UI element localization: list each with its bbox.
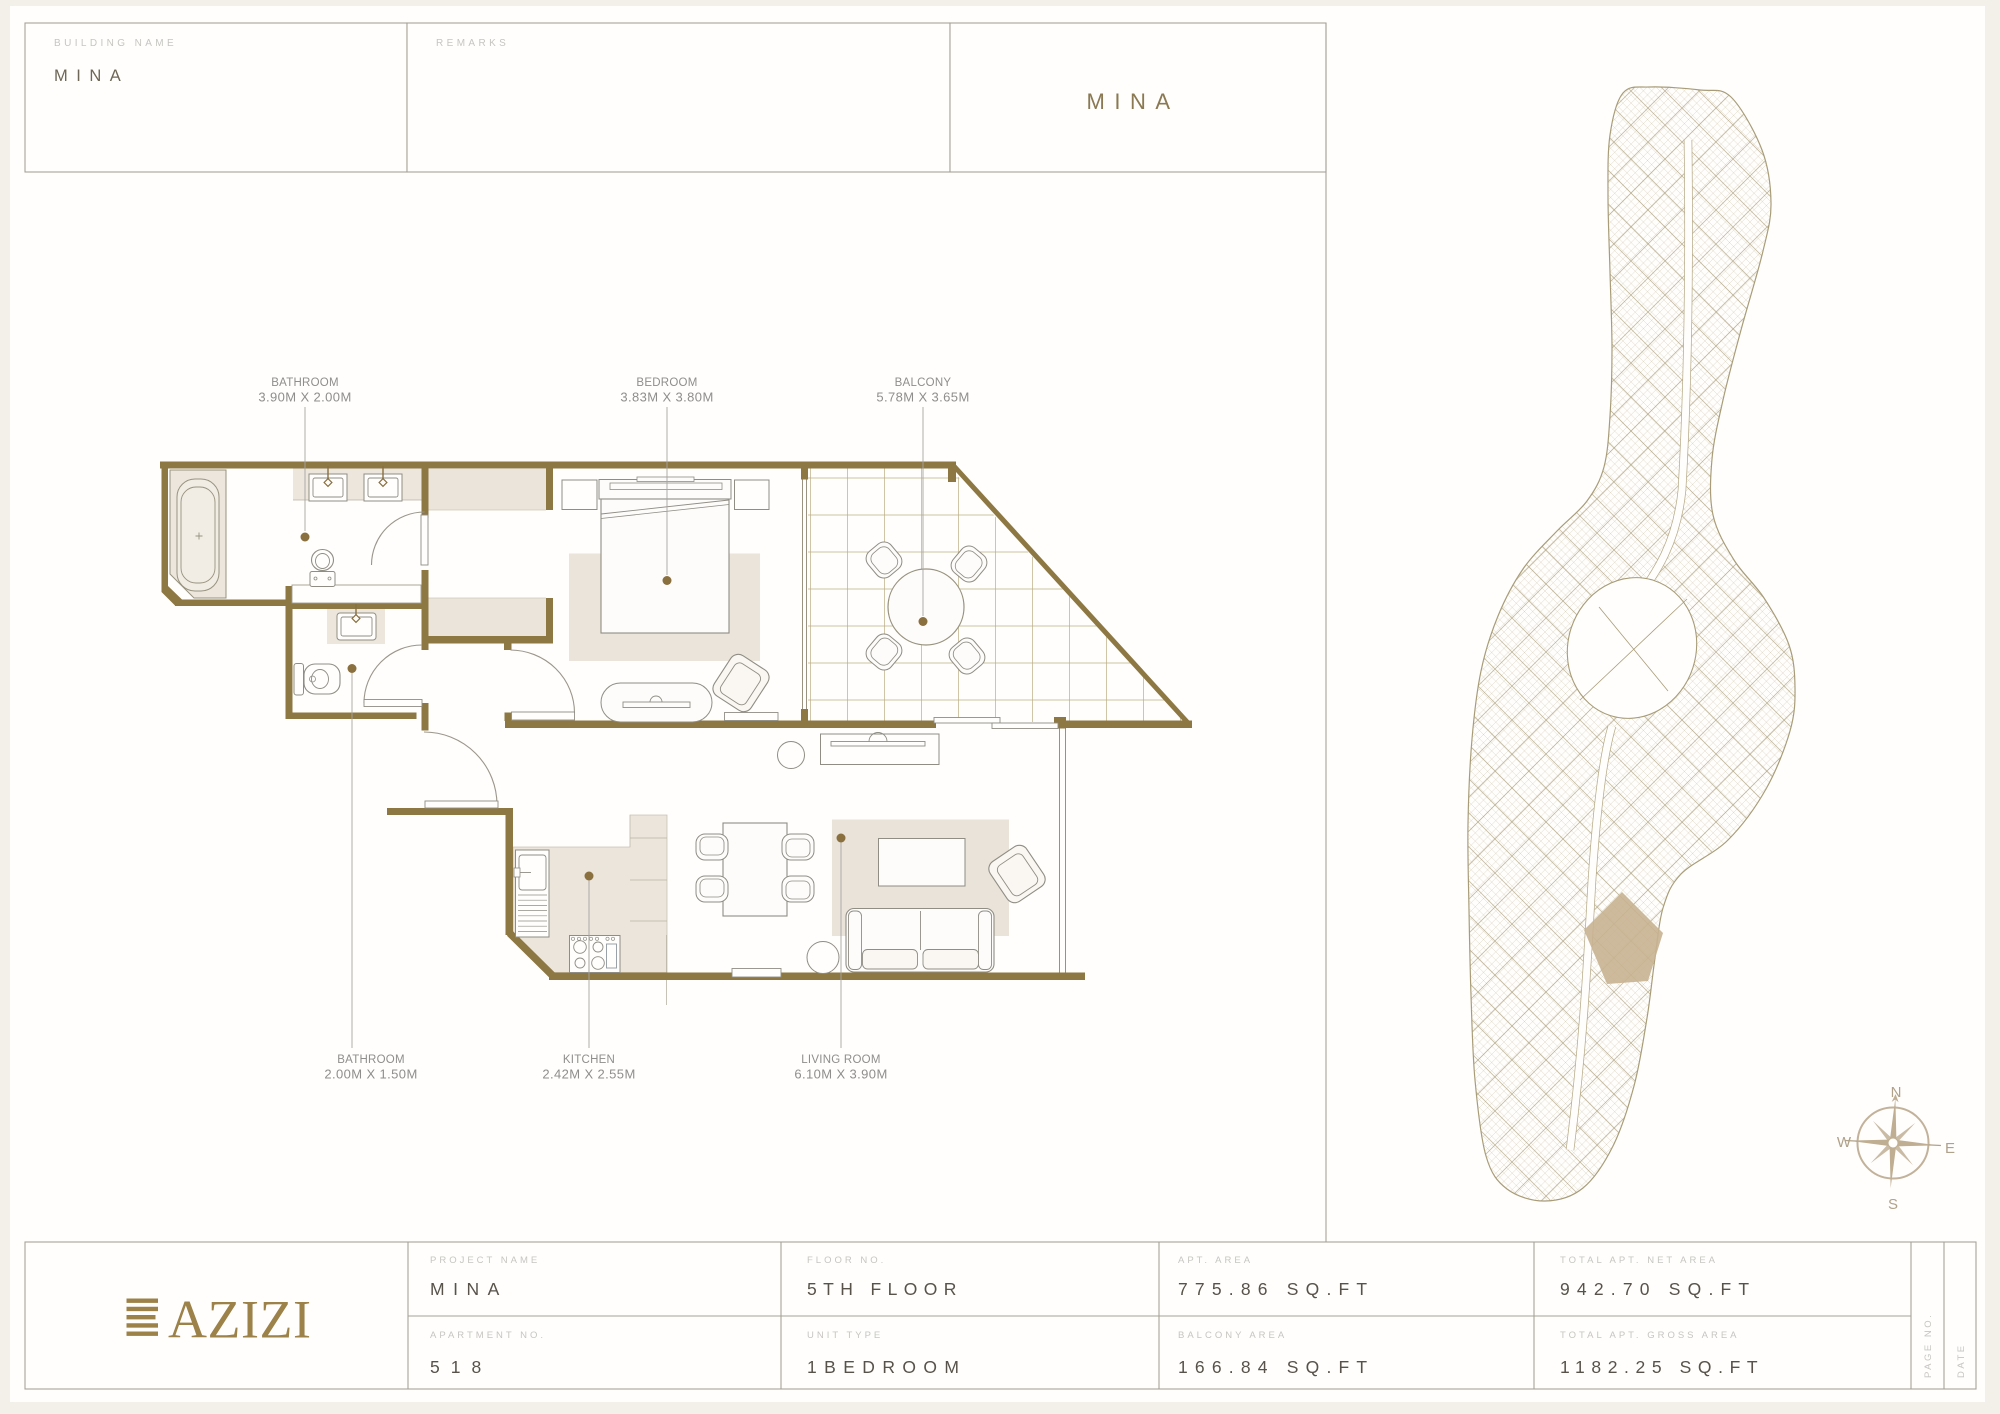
svg-text:FLOOR NO.: FLOOR NO. bbox=[807, 1255, 886, 1266]
svg-text:APARTMENT NO.: APARTMENT NO. bbox=[430, 1330, 546, 1341]
svg-text:3.90M X 2.00M: 3.90M X 2.00M bbox=[258, 390, 351, 405]
svg-text:2.00M X 1.50M: 2.00M X 1.50M bbox=[324, 1067, 417, 1082]
svg-text:BALCONY: BALCONY bbox=[895, 377, 952, 389]
svg-text:2.42M X 2.55M: 2.42M X 2.55M bbox=[542, 1067, 635, 1082]
svg-text:UNIT TYPE: UNIT TYPE bbox=[807, 1330, 883, 1341]
svg-text:S: S bbox=[1888, 1196, 1898, 1213]
svg-text:5TH FLOOR: 5TH FLOOR bbox=[807, 1279, 963, 1299]
svg-text:MINA: MINA bbox=[430, 1279, 508, 1299]
svg-text:TOTAL APT. GROSS AREA: TOTAL APT. GROSS AREA bbox=[1560, 1330, 1740, 1341]
svg-text:APT. AREA: APT. AREA bbox=[1178, 1255, 1253, 1266]
svg-text:LIVING ROOM: LIVING ROOM bbox=[801, 1054, 880, 1066]
svg-text:BATHROOM: BATHROOM bbox=[337, 1054, 405, 1066]
svg-text:REMARKS: REMARKS bbox=[436, 38, 509, 49]
svg-text:MINA: MINA bbox=[1087, 89, 1180, 114]
svg-text:1182.25 SQ.FT: 1182.25 SQ.FT bbox=[1560, 1357, 1764, 1377]
svg-text:5.78M X 3.65M: 5.78M X 3.65M bbox=[876, 390, 969, 405]
svg-text:AZIZI: AZIZI bbox=[168, 1290, 311, 1350]
svg-text:TOTAL APT. NET AREA: TOTAL APT. NET AREA bbox=[1560, 1255, 1718, 1266]
svg-text:166.84 SQ.FT: 166.84 SQ.FT bbox=[1178, 1357, 1374, 1377]
svg-text:1BEDROOM: 1BEDROOM bbox=[807, 1357, 966, 1377]
svg-text:KITCHEN: KITCHEN bbox=[563, 1054, 615, 1066]
svg-text:BALCONY AREA: BALCONY AREA bbox=[1178, 1330, 1287, 1341]
svg-text:BEDROOM: BEDROOM bbox=[636, 377, 697, 389]
svg-text:BATHROOM: BATHROOM bbox=[271, 377, 339, 389]
svg-text:MINA: MINA bbox=[54, 67, 129, 85]
svg-text:PAGE NO.: PAGE NO. bbox=[1923, 1313, 1934, 1378]
svg-text:6.10M X 3.90M: 6.10M X 3.90M bbox=[794, 1067, 887, 1082]
svg-text:518: 518 bbox=[430, 1357, 492, 1377]
svg-text:E: E bbox=[1945, 1140, 1955, 1157]
svg-text:BUILDING NAME: BUILDING NAME bbox=[54, 38, 177, 49]
svg-text:3.83M X 3.80M: 3.83M X 3.80M bbox=[620, 390, 713, 405]
svg-text:N: N bbox=[1891, 1084, 1902, 1101]
svg-text:775.86 SQ.FT: 775.86 SQ.FT bbox=[1178, 1279, 1374, 1299]
svg-text:942.70 SQ.FT: 942.70 SQ.FT bbox=[1560, 1279, 1756, 1299]
svg-text:W: W bbox=[1837, 1134, 1852, 1151]
svg-text:DATE: DATE bbox=[1956, 1343, 1967, 1378]
svg-text:PROJECT NAME: PROJECT NAME bbox=[430, 1255, 540, 1266]
